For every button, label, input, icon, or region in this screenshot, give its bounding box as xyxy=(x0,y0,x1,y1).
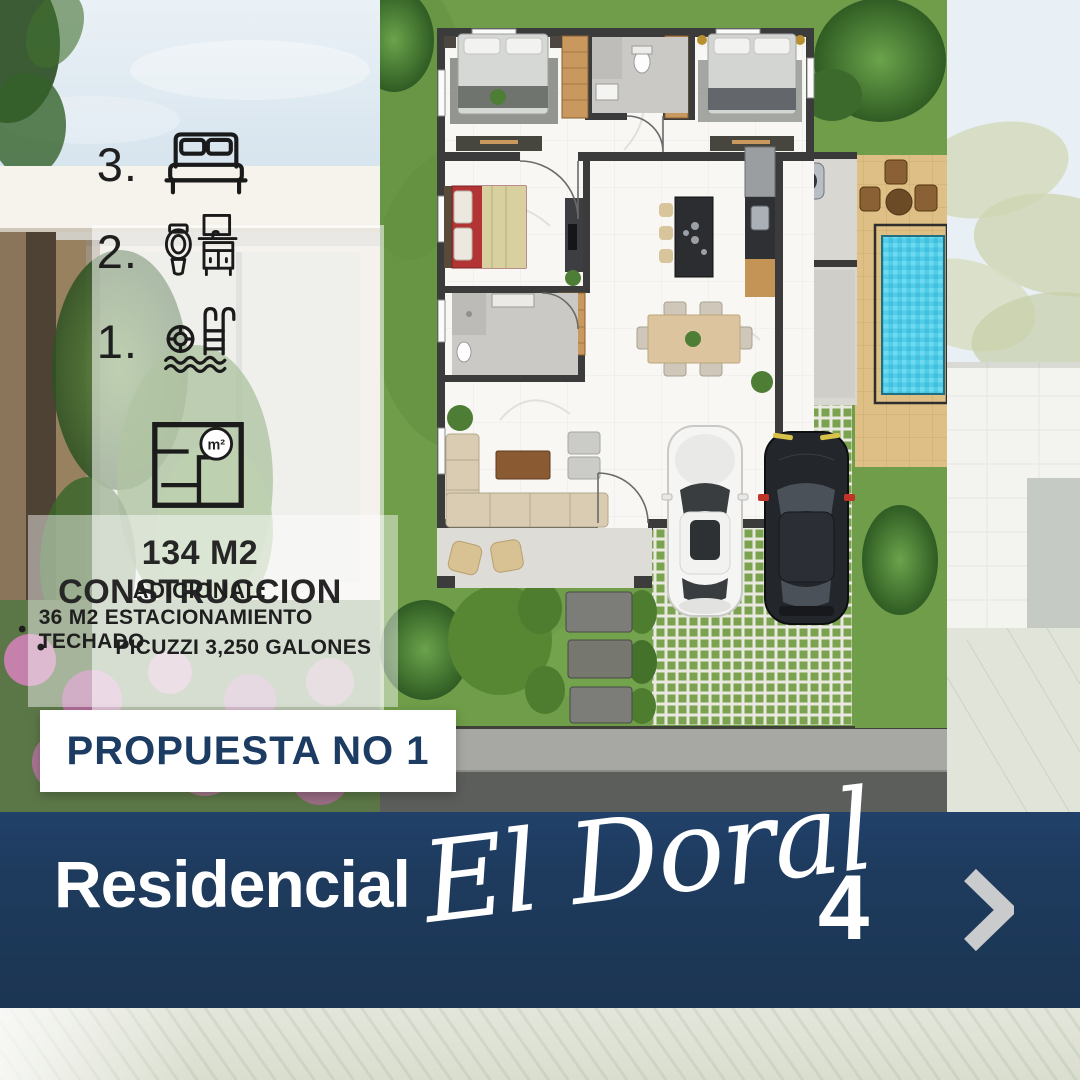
right-background-photo xyxy=(947,0,1080,812)
bathroom-icon xyxy=(160,210,240,293)
proposal-label: PROPUESTA NO 1 xyxy=(67,729,430,774)
flyer-root: 3. 2. xyxy=(0,0,1080,1080)
feature-row-bathrooms: 2. xyxy=(58,208,240,294)
bedroom-count: 3. xyxy=(58,137,138,192)
floor-area-icon: m² xyxy=(150,416,246,517)
pool-count: 1. xyxy=(58,314,138,369)
bullet-picuzzi: • PICUZZI 3,250 GALONES xyxy=(18,634,390,662)
additional-label: ADICIONAL: xyxy=(18,578,382,604)
bed-icon xyxy=(160,128,252,201)
brand-prefix: Residencial xyxy=(54,846,410,922)
feature-row-pool: 1. xyxy=(58,296,242,386)
floor-plan-image xyxy=(380,0,947,812)
bullet-picuzzi-text: PICUZZI 3,250 GALONES xyxy=(115,636,371,660)
bottom-pavement xyxy=(0,1008,1080,1080)
m2-label: m² xyxy=(207,438,225,454)
bathroom-count: 2. xyxy=(58,224,138,279)
chevron-right-icon[interactable] xyxy=(962,868,1014,957)
title-banner: Residencial El Doral 4 xyxy=(0,812,1080,1008)
pool-icon xyxy=(160,298,242,385)
brand-number: 4 xyxy=(818,856,869,961)
feature-row-bedrooms: 3. xyxy=(58,118,252,210)
bullet-dot-icon: • xyxy=(37,634,46,662)
proposal-badge: PROPUESTA NO 1 xyxy=(40,710,456,792)
